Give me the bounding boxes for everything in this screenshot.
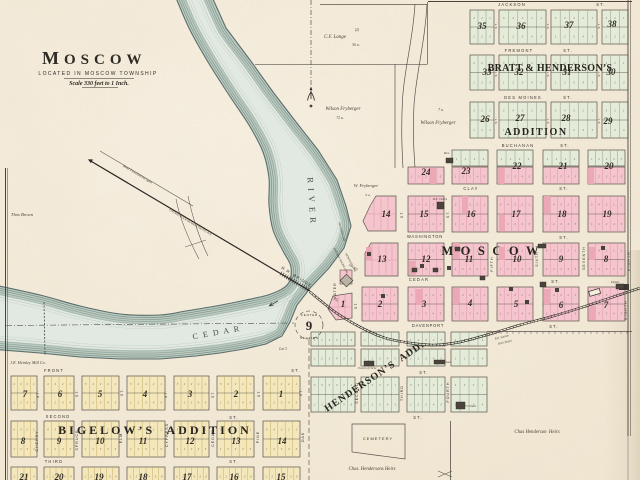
svg-text:ST.: ST.	[299, 388, 303, 396]
svg-text:Lot 3: Lot 3	[278, 347, 287, 351]
svg-text:6 a.: 6 a.	[365, 193, 370, 197]
svg-text:ST.: ST.	[559, 235, 569, 240]
svg-text:FIFTH: FIFTH	[490, 256, 494, 271]
svg-text:CLAY: CLAY	[463, 186, 478, 191]
svg-text:ST.: ST.	[563, 48, 573, 53]
svg-text:15: 15	[277, 472, 287, 480]
svg-text:SEVENTH: SEVENTH	[582, 246, 586, 270]
svg-text:22: 22	[512, 161, 523, 171]
svg-text:ST.: ST.	[597, 21, 601, 28]
svg-text:ST.: ST.	[75, 389, 79, 397]
svg-text:ST.: ST.	[229, 459, 239, 464]
svg-text:5: 5	[514, 299, 519, 309]
svg-text:36: 36	[516, 21, 527, 31]
svg-text:ST.: ST.	[419, 370, 429, 375]
svg-text:17: 17	[183, 472, 193, 480]
svg-text:PINE: PINE	[256, 431, 260, 443]
svg-text:29: 29	[603, 116, 614, 126]
svg-text:Chas. Hendersons Heirs: Chas. Hendersons Heirs	[348, 467, 395, 472]
svg-text:1: 1	[279, 389, 284, 399]
svg-text:14: 14	[278, 436, 288, 446]
svg-text:7: 7	[604, 300, 609, 310]
svg-text:ST.: ST.	[211, 390, 215, 398]
svg-text:FREMONT: FREMONT	[505, 48, 534, 53]
svg-text:Res.: Res.	[443, 151, 450, 155]
svg-text:ST.: ST.	[400, 210, 404, 218]
svg-text:S E C T I O N: S E C T I O N	[300, 336, 318, 340]
svg-text:ST.: ST.	[549, 324, 559, 329]
svg-text:ST.: ST.	[229, 415, 239, 420]
svg-text:BIGELOW’S ADDITION: BIGELOW’S ADDITION	[58, 423, 252, 437]
svg-text:37: 37	[564, 20, 575, 30]
svg-text:THIRD: THIRD	[45, 459, 64, 464]
svg-text:CHERRY: CHERRY	[35, 430, 39, 451]
svg-text:19: 19	[95, 472, 105, 480]
svg-text:ST.: ST.	[36, 390, 40, 398]
svg-text:Depot: Depot	[610, 280, 620, 284]
svg-text:ST.: ST.	[494, 116, 498, 123]
svg-text:DES MOINES: DES MOINES	[504, 95, 542, 100]
svg-text:10: 10	[96, 436, 106, 446]
svg-text:56 a.: 56 a.	[352, 43, 359, 47]
svg-text:15: 15	[420, 209, 430, 219]
svg-text:LOCATED IN MOSCOW TOWNSHIP: LOCATED IN MOSCOW TOWNSHIP	[38, 71, 157, 77]
svg-text:ST.: ST.	[560, 143, 570, 148]
svg-text:ST.: ST.	[120, 388, 124, 396]
svg-text:12: 12	[422, 254, 432, 264]
svg-text:23: 23	[461, 166, 472, 176]
svg-text:1: 1	[341, 299, 346, 309]
svg-text:ST.: ST.	[494, 21, 498, 28]
svg-text:ADDITION: ADDITION	[504, 127, 567, 138]
svg-text:7 a.: 7 a.	[438, 108, 443, 112]
svg-text:21: 21	[19, 472, 29, 480]
svg-text:8: 8	[21, 436, 26, 446]
svg-text:JACKSON: JACKSON	[498, 2, 526, 7]
svg-text:EIGHTH: EIGHTH	[624, 300, 628, 320]
svg-text:8: 8	[604, 254, 609, 264]
svg-text:WASHINGTON: WASHINGTON	[407, 234, 443, 239]
svg-text:27: 27	[515, 113, 526, 123]
svg-text:5: 5	[98, 389, 103, 399]
svg-text:Thos Brown: Thos Brown	[11, 212, 34, 217]
svg-text:ST.: ST.	[546, 116, 550, 123]
svg-text:C E N T E R: C E N T E R	[301, 313, 318, 317]
svg-text:C.F. Lange: C.F. Lange	[324, 35, 347, 40]
svg-text:19: 19	[603, 209, 613, 219]
svg-text:18: 18	[558, 209, 568, 219]
svg-text:ST.: ST.	[551, 279, 561, 284]
svg-text:SECOND: SECOND	[46, 414, 71, 419]
svg-text:2: 2	[377, 299, 383, 309]
svg-text:Scale 330 feet to 1 Inch.: Scale 330 feet to 1 Inch.	[69, 81, 129, 87]
svg-text:ST.: ST.	[354, 301, 358, 309]
svg-text:ST.: ST.	[291, 368, 301, 373]
svg-text:4: 4	[142, 389, 148, 399]
svg-text:THIRD: THIRD	[400, 385, 404, 401]
svg-text:20: 20	[604, 161, 615, 171]
svg-text:17: 17	[512, 209, 522, 219]
svg-text:6: 6	[58, 389, 63, 399]
svg-text:ST.: ST.	[257, 389, 261, 397]
svg-text:M.E. Church: M.E. Church	[432, 198, 448, 201]
svg-text:Chas Henderson Heirs: Chas Henderson Heirs	[514, 430, 559, 435]
svg-text:20: 20	[54, 472, 65, 480]
svg-text:BRATT & HENDERSON’S: BRATT & HENDERSON’S	[488, 63, 613, 74]
svg-text:11: 11	[139, 436, 148, 446]
svg-text:Church of Christ: Church of Christ	[358, 367, 377, 370]
svg-text:2: 2	[233, 389, 239, 399]
svg-text:28: 28	[561, 113, 572, 123]
svg-text:FOURTH: FOURTH	[446, 382, 450, 403]
svg-text:13: 13	[378, 254, 388, 264]
svg-text:24: 24	[421, 167, 432, 177]
svg-text:OAK: OAK	[301, 432, 305, 443]
svg-text:26: 26	[480, 114, 491, 124]
svg-text:16: 16	[230, 472, 240, 480]
svg-text:35: 35	[477, 21, 488, 31]
svg-text:FRONT: FRONT	[44, 368, 64, 373]
svg-text:ST.: ST.	[446, 210, 450, 218]
svg-text:14: 14	[382, 209, 392, 219]
svg-text:6: 6	[559, 300, 564, 310]
svg-text:21: 21	[558, 161, 568, 171]
svg-text:3: 3	[187, 389, 193, 399]
svg-text:BUCHANAN: BUCHANAN	[502, 143, 535, 148]
svg-text:ST.: ST.	[597, 116, 601, 123]
svg-text:13: 13	[232, 436, 242, 446]
svg-text:12: 12	[186, 436, 196, 446]
svg-text:J.E. Heinley Mill Co.: J.E. Heinley Mill Co.	[10, 360, 46, 365]
svg-text:9: 9	[559, 254, 564, 264]
svg-text:ST.: ST.	[596, 2, 606, 7]
svg-text:ST.: ST.	[559, 186, 569, 191]
svg-text:18: 18	[139, 472, 149, 480]
svg-text:CEDAR: CEDAR	[409, 277, 429, 282]
svg-text:9: 9	[306, 318, 313, 333]
svg-text:38: 38	[607, 19, 618, 29]
svg-text:W. Fryberger: W. Fryberger	[354, 183, 379, 188]
svg-text:ST.: ST.	[413, 415, 423, 420]
svg-text:CEMETERY: CEMETERY	[363, 436, 393, 441]
svg-text:72 a.: 72 a.	[336, 116, 343, 120]
svg-text:Wilson Fryberger: Wilson Fryberger	[325, 107, 360, 112]
svg-text:4: 4	[467, 298, 473, 308]
svg-text:DAVENPORT: DAVENPORT	[412, 323, 444, 328]
svg-text:ST.: ST.	[164, 390, 168, 398]
svg-text:Wilson Fryberger: Wilson Fryberger	[420, 121, 455, 126]
svg-text:9: 9	[57, 436, 62, 446]
svg-text:ST.: ST.	[546, 21, 550, 28]
svg-text:7: 7	[23, 389, 28, 399]
svg-text:ST.: ST.	[563, 95, 573, 100]
